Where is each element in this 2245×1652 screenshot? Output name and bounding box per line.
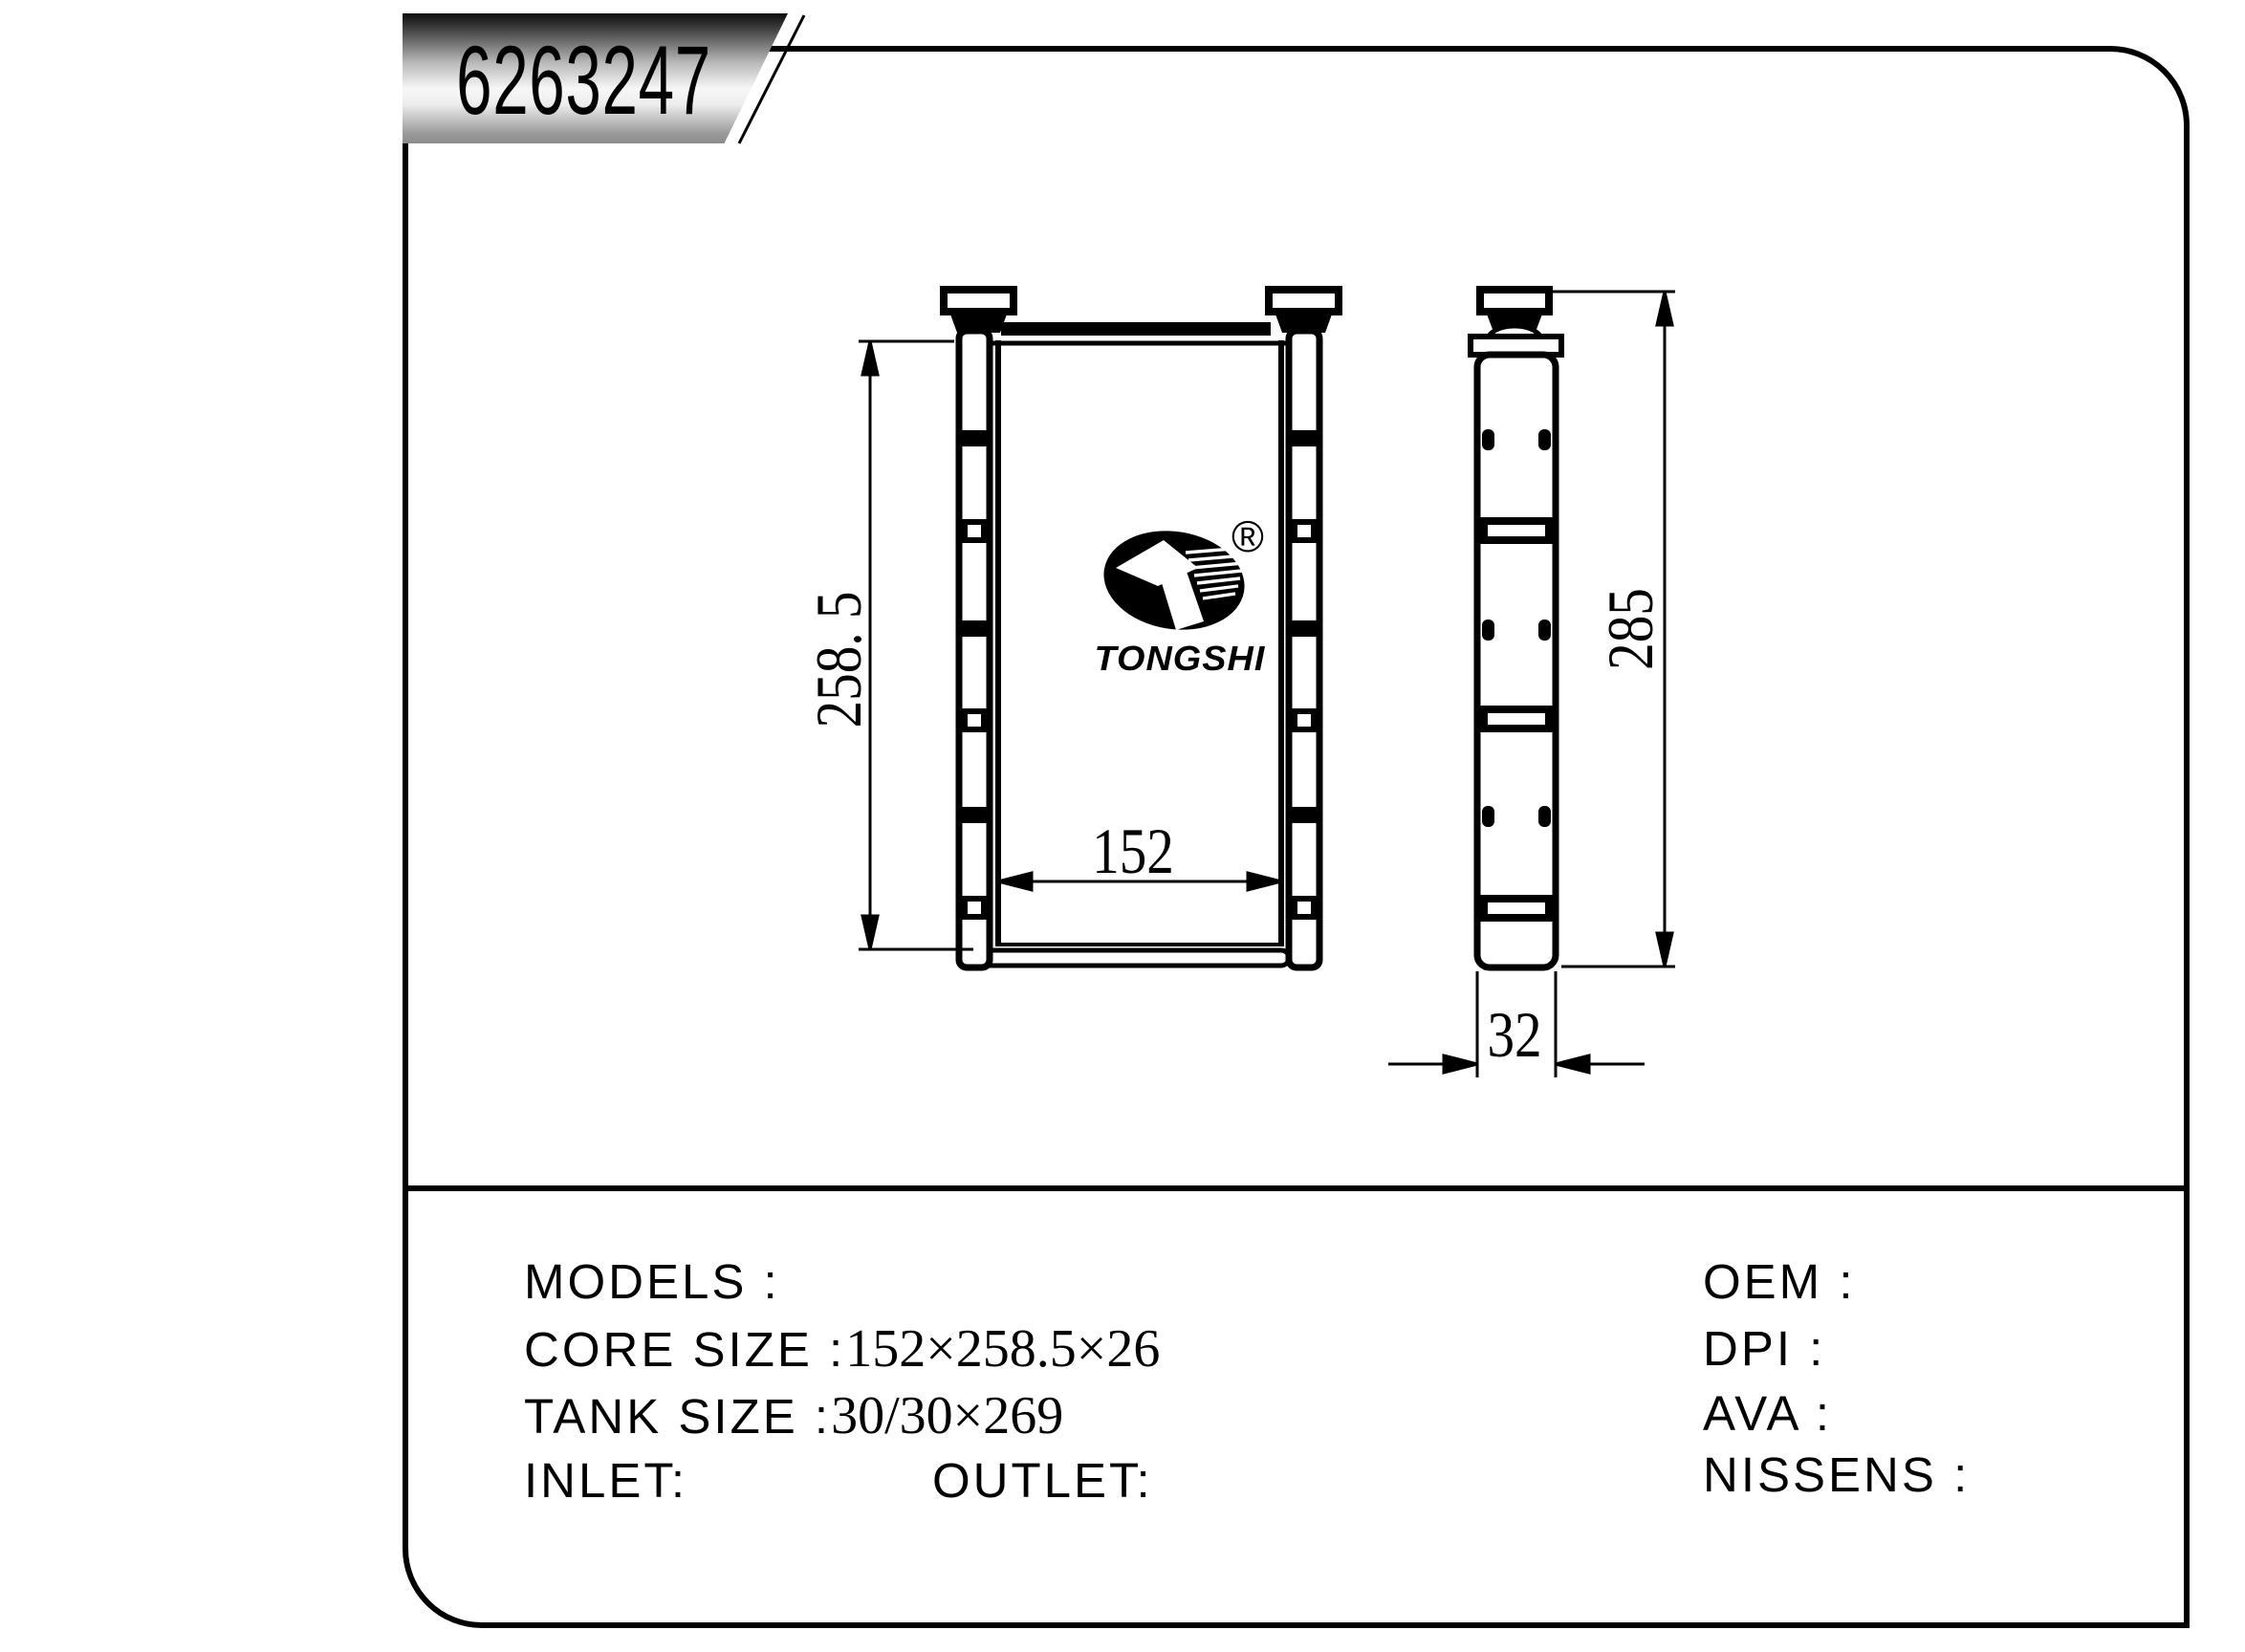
tank-size-value: 30/30×269 — [831, 1386, 1063, 1445]
side-flange — [1480, 290, 1549, 312]
brand-name: TONGSHI — [1074, 640, 1287, 678]
inlet-flange — [944, 290, 1014, 312]
dim-core-height-text: 258. 5 — [806, 539, 871, 780]
dim-core-width-text: 152 — [1053, 818, 1213, 883]
dim-overall-height-text: 285 — [1598, 509, 1663, 750]
part-number: 6263247 — [456, 13, 665, 143]
tank-size-label: TANK SIZE : — [524, 1389, 831, 1444]
right-tank — [1289, 331, 1319, 967]
nissens-label: NISSENS : — [1703, 1447, 1970, 1503]
models-label: MODELS : — [524, 1254, 780, 1310]
brand-logo-mark — [1097, 521, 1252, 640]
oem-label: OEM : — [1703, 1254, 1856, 1310]
outlet-label: OUTLET: — [932, 1453, 1153, 1509]
core-size-label: CORE SIZE : — [524, 1322, 845, 1377]
registered-trademark-icon: ® — [1231, 514, 1264, 558]
tank-size-row: TANK SIZE :30/30×269 — [524, 1388, 1063, 1445]
ava-label: AVA : — [1703, 1386, 1832, 1442]
left-tank — [959, 331, 990, 967]
inlet-label: INLET: — [524, 1453, 687, 1509]
outlet-flange — [1269, 290, 1339, 312]
core-size-row: CORE SIZE :152×258.5×26 — [524, 1321, 1160, 1378]
dpi-label: DPI : — [1703, 1321, 1825, 1377]
spec-sheet: 6263247 258. 5 152 285 32 ® TONGSHI MODE… — [0, 0, 2245, 1652]
side-view — [1471, 290, 1561, 967]
core-size-value: 152×258.5×26 — [845, 1319, 1160, 1379]
part-number-badge: 6263247 — [403, 13, 788, 143]
dim-tank-depth-text: 32 — [1434, 1002, 1595, 1067]
